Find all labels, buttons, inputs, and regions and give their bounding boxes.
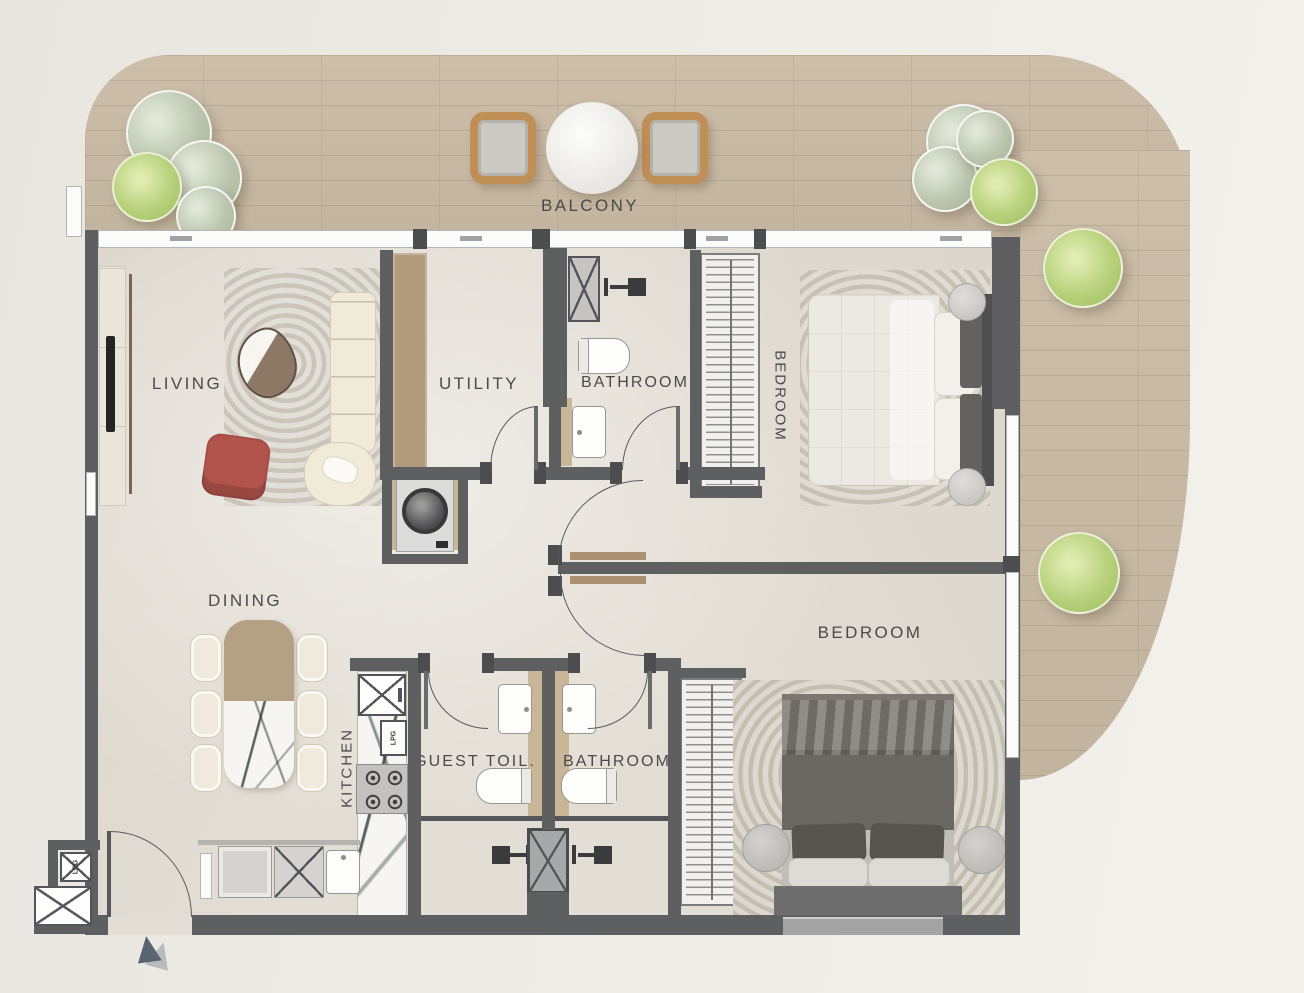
floor-plan: BALCONY LIVING UTILITY BATHROOM xyxy=(0,0,1304,993)
balcony-chair xyxy=(642,112,708,184)
window-mullion xyxy=(754,229,766,249)
dining-chair xyxy=(296,744,328,792)
room-label-balcony: BALCONY xyxy=(541,196,639,216)
door-post xyxy=(644,653,656,673)
kitchen-tall-unit xyxy=(200,853,212,899)
wall-segment xyxy=(458,470,468,564)
service-shaft xyxy=(527,828,569,894)
wall-segment xyxy=(549,407,561,469)
armchair-red xyxy=(200,432,272,502)
wall-left xyxy=(85,230,98,918)
toilet-fixture xyxy=(561,768,617,804)
kitchen-sink-small xyxy=(326,850,360,894)
room-label-bedroom-top: BEDROOM xyxy=(772,350,789,442)
window-mullion xyxy=(684,229,696,249)
faucet xyxy=(341,855,346,860)
fridge xyxy=(218,846,272,898)
shower-screen xyxy=(555,816,668,821)
sink-fixture xyxy=(572,406,606,458)
door-post xyxy=(568,653,580,673)
tv-panel xyxy=(129,274,132,494)
sink-fixture xyxy=(498,684,532,734)
toilet-fixture xyxy=(578,338,630,374)
wall-segment xyxy=(408,658,421,918)
kitchen-counter-edge xyxy=(198,840,360,845)
wall-segment xyxy=(380,250,393,474)
window-handle xyxy=(460,236,482,241)
wardrobe-rod xyxy=(730,260,732,485)
window-mullion xyxy=(413,229,427,249)
shower-arm xyxy=(510,853,526,857)
bed-pillow xyxy=(788,858,868,888)
sofa xyxy=(330,292,376,452)
faucet xyxy=(524,707,529,712)
toilet-tank xyxy=(579,339,589,373)
window-handle xyxy=(706,236,728,241)
shower-arm xyxy=(610,285,628,289)
bed-pillow xyxy=(868,858,950,888)
lpg-label: LPG xyxy=(73,860,80,874)
dining-chair xyxy=(190,744,222,792)
room-label-guest-toilet: GUEST TOIL. xyxy=(414,753,536,771)
washing-machine-door xyxy=(402,488,448,534)
balcony-table xyxy=(546,102,638,194)
window-bedroom-bottom xyxy=(783,917,943,935)
wall-segment xyxy=(350,658,425,671)
vanity-counter xyxy=(561,398,572,466)
plant xyxy=(112,152,182,222)
door-post xyxy=(610,462,622,484)
bed-headboard xyxy=(774,886,962,916)
washing-machine-panel xyxy=(436,541,448,548)
wall-segment xyxy=(542,658,555,830)
dining-chair xyxy=(296,690,328,738)
shower-valve xyxy=(604,278,608,296)
dining-chair xyxy=(296,634,328,682)
toilet-tank xyxy=(606,769,616,803)
wall-segment xyxy=(540,467,620,480)
wall-segment xyxy=(690,250,701,490)
window-mullion xyxy=(1003,556,1020,573)
entry-arrow-icon xyxy=(134,934,161,963)
shower-head xyxy=(594,846,612,864)
door-post xyxy=(482,653,494,673)
lpg-box-kitchen: LPG xyxy=(380,720,407,756)
window-handle xyxy=(940,236,962,241)
room-label-living: LIVING xyxy=(152,374,222,394)
window-left xyxy=(86,472,96,516)
room-label-utility: UTILITY xyxy=(439,374,519,394)
wall-segment xyxy=(668,668,746,678)
room-label-kitchen: KITCHEN xyxy=(339,728,356,808)
kitchen-faucet xyxy=(398,688,402,702)
wall-segment xyxy=(380,467,490,480)
bed-accent-pillow xyxy=(960,394,982,480)
wall-duct xyxy=(543,237,567,407)
room-label-dining: DINING xyxy=(208,591,282,611)
shower-head xyxy=(628,278,646,296)
balcony-chair xyxy=(470,112,536,184)
tv-screen xyxy=(106,336,115,432)
toilet-fixture xyxy=(476,768,532,804)
wall-segment xyxy=(690,486,762,498)
nightstand xyxy=(742,824,790,872)
shower-arm xyxy=(578,853,594,857)
wardrobe xyxy=(700,253,760,491)
utility-closet xyxy=(393,253,427,471)
door-post xyxy=(418,653,430,673)
wall-segment xyxy=(382,554,468,564)
nightstand xyxy=(948,468,986,506)
wardrobe-rod xyxy=(711,684,713,899)
wall-segment xyxy=(668,658,681,918)
utility-meter-box xyxy=(34,886,92,926)
door-leaf xyxy=(648,671,652,729)
door-leaf xyxy=(424,671,428,729)
lpg-meter-box: LPG xyxy=(60,852,92,882)
nightstand xyxy=(948,283,986,321)
dining-table-marble xyxy=(224,701,294,788)
plant xyxy=(1038,532,1120,614)
toilet-tank xyxy=(521,769,531,803)
shower-tray xyxy=(568,256,600,322)
dining-table xyxy=(224,620,294,788)
plant xyxy=(1043,228,1123,308)
room-label-bedroom-bottom: BEDROOM xyxy=(818,623,923,643)
wall-chunk xyxy=(992,237,1020,409)
balcony-railing xyxy=(66,186,82,237)
bed-blanket xyxy=(782,700,954,755)
room-label-bathroom-bottom: BATHROOM xyxy=(563,753,671,771)
faucet xyxy=(567,707,572,712)
stove xyxy=(356,764,408,814)
shower-valve xyxy=(572,845,576,864)
dining-chair xyxy=(190,634,222,682)
window-mullion xyxy=(532,229,550,249)
nightstand xyxy=(958,826,1006,874)
plant xyxy=(970,158,1038,226)
faucet xyxy=(577,430,582,435)
entry-opening xyxy=(108,915,192,935)
wall-segment xyxy=(34,926,92,934)
dining-chair xyxy=(190,690,222,738)
wall-segment xyxy=(382,470,392,564)
window-right xyxy=(1006,572,1019,758)
wall-segment xyxy=(680,467,765,480)
wall-segment xyxy=(488,658,575,671)
window-handle xyxy=(170,236,192,241)
room-label-bathroom-top: BATHROOM xyxy=(581,374,689,392)
shower-screen xyxy=(420,816,542,821)
window-right xyxy=(1006,415,1019,557)
lpg-label: LPG xyxy=(390,731,397,745)
oven xyxy=(274,846,324,898)
bed-runner xyxy=(890,300,934,480)
shower-head xyxy=(492,846,510,864)
dining-table-wood xyxy=(224,620,294,701)
